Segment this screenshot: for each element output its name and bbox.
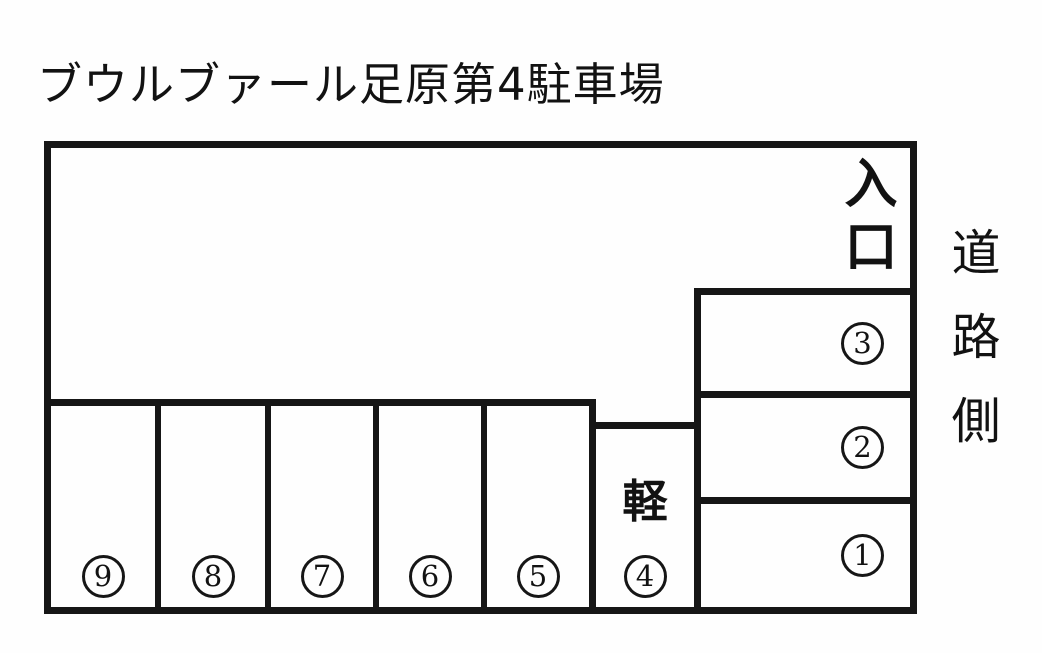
space-number: 4	[636, 562, 654, 591]
space-number: 6	[421, 562, 439, 591]
space-number: 7	[313, 562, 331, 591]
divider-3-2	[694, 391, 917, 398]
space-number: 8	[204, 562, 222, 591]
parking-space-9: 9	[51, 406, 155, 607]
parking-space-5: 5	[487, 406, 589, 607]
parking-space-3: 3	[701, 295, 910, 391]
space-number-badge: 1	[841, 534, 884, 577]
space-3-top-line	[694, 288, 917, 295]
space-number-badge: 4	[624, 555, 667, 598]
parking-space-6: 6	[379, 406, 481, 607]
space-number-badge: 9	[82, 555, 125, 598]
space-number: 1	[853, 541, 871, 570]
space-4-top-line	[589, 422, 701, 429]
divider-2-1	[694, 497, 917, 504]
space-number-badge: 3	[841, 322, 884, 365]
space-number: 2	[853, 433, 871, 462]
page-title: ブウルブァール足原第4駐車場	[37, 48, 665, 113]
parking-space-8: 8	[161, 406, 265, 607]
outer-wall-top	[44, 141, 917, 148]
kei-car-label: 軽	[622, 479, 667, 524]
parking-space-1: 1	[701, 504, 910, 607]
space-number-badge: 8	[192, 555, 235, 598]
space-number-badge: 5	[517, 555, 560, 598]
space-number-badge: 6	[409, 555, 452, 598]
space-number-badge: 7	[301, 555, 344, 598]
parking-lot-diagram: ブウルブァール足原第4駐車場 入口 道路側 9 8 7 6 5 軽 4 3	[0, 0, 1042, 653]
parking-space-4-kei: 軽 4	[596, 429, 694, 607]
parking-space-7: 7	[271, 406, 373, 607]
parking-space-2: 2	[701, 398, 910, 497]
outer-wall-left	[44, 141, 51, 614]
space-number: 5	[529, 562, 547, 591]
space-number-badge: 2	[841, 426, 884, 469]
right-column-left-wall	[694, 288, 701, 614]
space-number: 3	[853, 329, 871, 358]
divider-5-4	[589, 399, 596, 614]
outer-wall-right	[910, 141, 917, 614]
road-side-label: 道路側	[948, 229, 1004, 446]
space-number: 9	[94, 562, 112, 591]
entrance-label: 入口	[842, 158, 900, 274]
bottom-row-top-line	[44, 399, 595, 406]
